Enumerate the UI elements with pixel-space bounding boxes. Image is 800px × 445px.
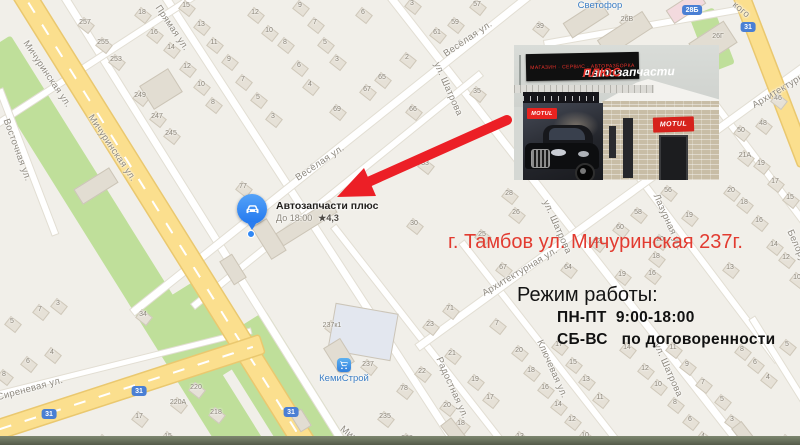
house-number: 3 — [410, 0, 414, 7]
marker-location-dot — [247, 230, 255, 238]
map-canvas[interactable]: 2572552532492472451816141210815131197531… — [0, 0, 800, 445]
house-number: 77 — [239, 183, 247, 190]
marker-tail — [247, 222, 257, 230]
photo-car-banner: MOTUL — [523, 103, 603, 180]
house-number: 17 — [135, 413, 143, 420]
car-marker-icon — [237, 194, 267, 224]
house-number: 13 — [197, 21, 205, 28]
house-number: 48 — [759, 120, 767, 127]
house-number: 10 — [265, 27, 273, 34]
road-shield: 31 — [741, 22, 756, 32]
car-wheel-hub — [580, 168, 586, 174]
photo-sill — [602, 107, 719, 110]
house-number: 220А — [170, 399, 186, 406]
house-number: 9 — [298, 2, 302, 9]
marker-title: Автозапчасти плюс — [276, 200, 378, 212]
house-number: 19 — [471, 376, 479, 383]
house-number: 21 — [448, 350, 456, 357]
poi-kemistroy-label: КемиСтрой — [316, 373, 372, 384]
house-number: 247 — [151, 113, 163, 120]
car-headlight — [551, 149, 566, 156]
house-number: 8 — [283, 39, 287, 46]
house-number: 4 — [766, 374, 770, 381]
house-number: 17 — [486, 394, 494, 401]
house-number: 58 — [634, 209, 642, 216]
house-number: 12 — [568, 416, 576, 423]
house-number: 7 — [313, 19, 317, 26]
house-number: 3 — [271, 113, 275, 120]
house-number: 9 — [227, 56, 231, 63]
house-number: 16 — [541, 384, 549, 391]
house-number: 28 — [505, 190, 513, 197]
road-shield: 31 — [132, 386, 147, 396]
house-number: 39 — [536, 23, 544, 30]
car-grille — [531, 149, 550, 168]
house-number: 67 — [499, 264, 507, 271]
marker-subtitle: До 18:00★4,3 — [276, 213, 378, 224]
house-number: 15 — [786, 194, 794, 201]
house-number: 8 — [211, 99, 215, 106]
house-number: 57 — [473, 1, 481, 8]
house-number: 12 — [183, 63, 191, 70]
house-number: 16 — [150, 29, 158, 36]
house-number: 26 — [512, 209, 520, 216]
house-number: 7 — [495, 320, 499, 327]
house-number: 5 — [720, 396, 724, 403]
store-sign: АвтозапчастиПЛЮС МАГАЗИН · СЕРВИС · АВТО… — [526, 52, 640, 81]
house-number: 18 — [527, 367, 535, 374]
car-windshield — [549, 128, 585, 140]
house-number: 18 — [138, 9, 146, 16]
motul-sign: MOTUL — [653, 116, 694, 132]
house-number: 22 — [418, 368, 426, 375]
house-number: 56 — [664, 187, 672, 194]
shopping-cart-icon — [337, 358, 351, 372]
house-number: 59 — [451, 19, 459, 26]
road-shield: 28Б — [682, 5, 702, 15]
house-number: 50 — [737, 127, 745, 134]
house-number: 18 — [457, 420, 465, 427]
house-number: 6 — [753, 359, 757, 366]
house-number: 249 — [134, 92, 146, 99]
house-number: 64 — [564, 264, 572, 271]
poi-svetofor-label: Светофор — [560, 0, 640, 11]
house-number: 257 — [79, 19, 91, 26]
house-number: 15 — [569, 359, 577, 366]
house-number: 245 — [165, 130, 177, 137]
house-number: 26Г — [712, 33, 724, 40]
house-number: 5 — [323, 39, 327, 46]
house-number: 3 — [730, 416, 734, 423]
address-text: г. Тамбов ул. Мичуринская 237г. — [448, 231, 743, 254]
house-number: 61 — [433, 29, 441, 36]
house-number: 235 — [379, 413, 391, 420]
photo-window — [623, 118, 633, 178]
working-hours-weekdays: ПН-ПТ 9:00-18:00 — [557, 309, 695, 327]
house-number: 3 — [335, 56, 339, 63]
house-number: 19 — [685, 212, 693, 219]
house-number: 12 — [251, 9, 259, 16]
house-number: 218 — [210, 409, 222, 416]
photo-window — [609, 126, 616, 158]
house-number: 5 — [785, 341, 789, 348]
house-number: 67 — [363, 86, 371, 93]
house-number: 17 — [771, 178, 779, 185]
house-number: 78 — [400, 385, 408, 392]
map-marker-autoparts[interactable] — [237, 194, 267, 224]
house-number: 9 — [685, 361, 689, 368]
house-number: 18 — [740, 199, 748, 206]
house-number: 14 — [167, 44, 175, 51]
house-number: 71 — [446, 305, 454, 312]
road-shield: 31 — [284, 407, 299, 417]
house-number: 16 — [648, 270, 656, 277]
house-number: 7 — [38, 306, 42, 313]
marker-label[interactable]: Автозапчасти плюс До 18:00★4,3 — [276, 200, 378, 224]
house-number: 5 — [10, 318, 14, 325]
house-number: 11 — [210, 39, 217, 46]
house-number: 10 — [197, 81, 205, 88]
house-number: 65 — [378, 74, 386, 81]
tree-line — [0, 436, 800, 445]
house-number: 11 — [596, 394, 603, 401]
house-number: 3 — [56, 300, 60, 307]
house-number: 18 — [652, 253, 660, 260]
house-number: 30 — [410, 220, 418, 227]
house-number: 10 — [654, 381, 662, 388]
house-number: 20 — [727, 187, 735, 194]
house-number: 12 — [641, 365, 649, 372]
house-number: 35 — [473, 88, 481, 95]
poi-svetofor[interactable]: Светофор — [560, 0, 640, 11]
house-number: 7 — [701, 379, 705, 386]
house-number: 26В — [621, 16, 633, 23]
house-number: 14 — [770, 241, 778, 248]
house-number: 19 — [757, 160, 765, 167]
house-number: 8 — [2, 371, 6, 378]
house-number: 20 — [443, 402, 451, 409]
house-number: 10 — [793, 274, 800, 281]
house-number: 14 — [554, 401, 562, 408]
house-number: 220 — [190, 384, 202, 391]
house-number: 8 — [673, 399, 677, 406]
house-number: 6 — [297, 62, 301, 69]
photo-door — [659, 135, 688, 180]
house-number: 13 — [726, 264, 734, 271]
marker-rating: ★4,3 — [318, 213, 339, 223]
house-number: 16 — [755, 217, 763, 224]
house-number: 4 — [50, 349, 54, 356]
house-number: 7 — [241, 76, 245, 83]
motul-banner-logo: MOTUL — [527, 108, 557, 119]
house-number: 5 — [256, 94, 260, 101]
car-headlight — [578, 151, 589, 157]
house-number: 12 — [782, 254, 790, 261]
photo-pole — [519, 55, 521, 87]
storefront-photo: MOTUL MOTUL АвтозапчастиПЛЮС МАГАЗИН · С… — [514, 45, 719, 180]
house-number: 237к1 — [323, 322, 342, 329]
house-number: 4 — [308, 81, 312, 88]
road-shield: 31 — [42, 409, 57, 419]
poi-kemistroy[interactable]: КемиСтрой — [316, 358, 372, 384]
house-number: 6 — [26, 358, 30, 365]
working-hours-title: Режим работы: — [517, 284, 658, 307]
house-number: 15 — [182, 2, 190, 9]
house-number: 253 — [110, 56, 122, 63]
house-number: 19 — [618, 271, 626, 278]
house-number: 2 — [405, 54, 409, 61]
marker-hours: До 18:00 — [276, 213, 312, 223]
house-number: 33 — [421, 160, 429, 167]
house-number: 6 — [688, 416, 692, 423]
house-number: 69 — [333, 106, 341, 113]
house-number: 21А — [739, 152, 751, 159]
working-hours-weekend: СБ-ВС по договоренности — [557, 331, 775, 349]
house-number: 20 — [515, 347, 523, 354]
street-label: Весёлая ул. — [294, 143, 347, 184]
house-number: 255 — [97, 39, 109, 46]
house-number: 34 — [139, 311, 147, 318]
house-number: 23 — [426, 321, 434, 328]
house-number: 66 — [409, 106, 417, 113]
house-number: 6 — [361, 9, 365, 16]
house-number: 13 — [582, 376, 590, 383]
